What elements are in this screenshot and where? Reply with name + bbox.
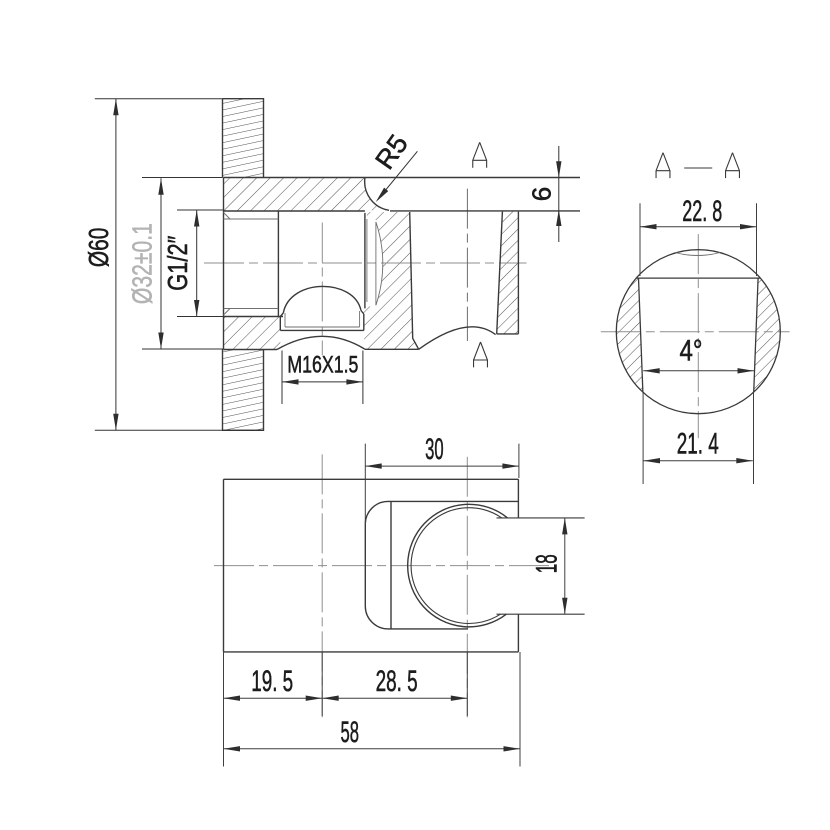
svg-text:58: 58 — [341, 716, 360, 749]
svg-text:M16X1.5: M16X1.5 — [287, 352, 358, 379]
svg-text:Ø60: Ø60 — [83, 228, 114, 268]
svg-text:19. 5: 19. 5 — [251, 665, 293, 698]
svg-text:22. 8: 22. 8 — [682, 195, 722, 228]
svg-text:Ø32±0.1: Ø32±0.1 — [127, 223, 158, 304]
svg-text:4°: 4° — [680, 335, 703, 368]
svg-text:30: 30 — [425, 433, 444, 466]
svg-text:21. 4: 21. 4 — [677, 428, 719, 461]
svg-text:28. 5: 28. 5 — [376, 665, 418, 698]
svg-text:G1/2″: G1/2″ — [162, 236, 193, 291]
svg-text:18: 18 — [531, 554, 564, 573]
svg-text:6: 6 — [527, 187, 557, 201]
